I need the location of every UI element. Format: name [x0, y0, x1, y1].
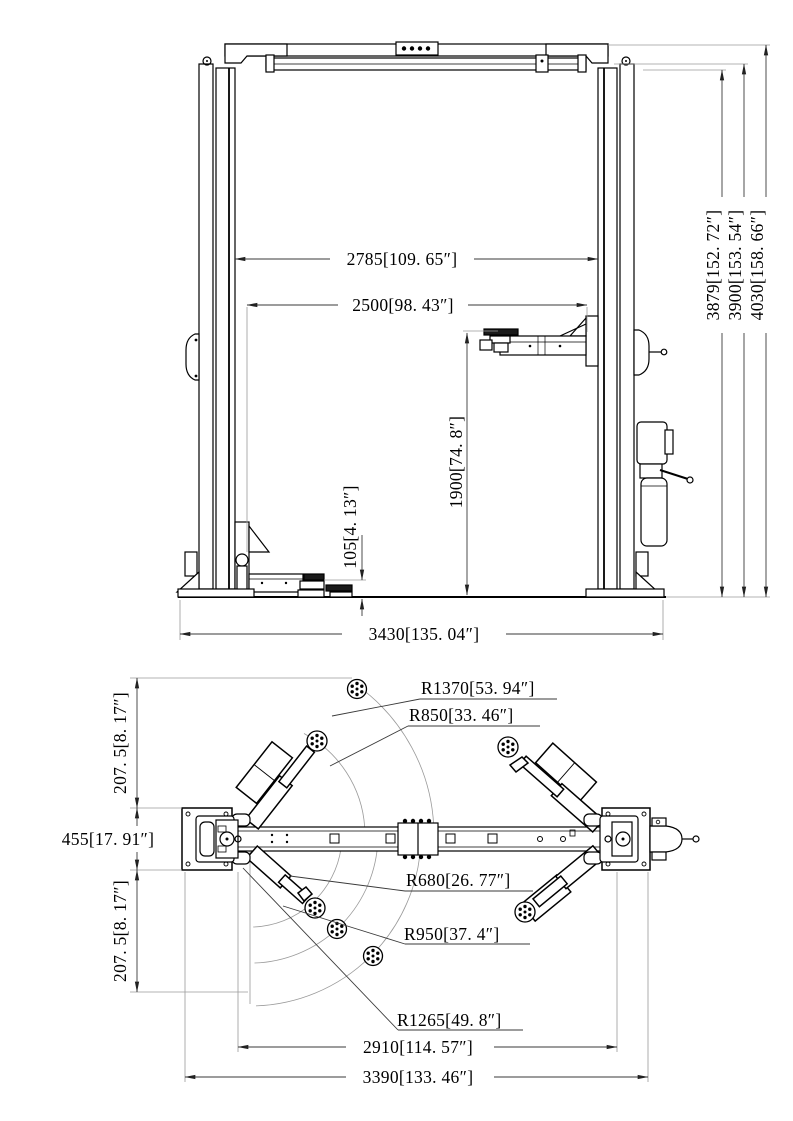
right-base-plate [586, 589, 664, 597]
label-radius-rear-mid: R950[37. 4″] [404, 924, 499, 944]
carriage-arm-lowered [235, 522, 352, 597]
handle-knob [693, 836, 699, 842]
dim-label-overall-height: 4030[158. 66″] [747, 210, 767, 321]
label-radius-max: R1370[53. 94″] [421, 678, 535, 698]
arm-lower-left [247, 846, 312, 904]
left-base-plate [178, 589, 254, 597]
floor-crossbeam [232, 819, 602, 859]
pad-wheel [498, 737, 518, 757]
left-column [177, 57, 235, 592]
dim-label-lift-height: 1900[74. 8″] [446, 416, 466, 509]
label-radius-rear-min: R680[26. 77″] [406, 870, 511, 890]
arm-pad-stack [298, 574, 352, 597]
dim-label-clearance-height: 3879[152. 72″] [703, 210, 723, 321]
plan-view-labels: R1370[53. 94″] R850[33. 46″] R680[26. 77… [62, 678, 535, 1087]
dim-lift-height [463, 331, 498, 595]
two-post-lift-drawing: 2785[109. 65″] 2500[98. 43″] 1900[74. 8″… [0, 0, 793, 1121]
label-radius-rear-max: R1265[49. 8″] [397, 1010, 502, 1030]
lift-arm [249, 574, 303, 592]
power-unit [637, 422, 693, 546]
lift-arm [500, 336, 586, 355]
technical-drawing-sheet: 2785[109. 65″] 2500[98. 43″] 1900[74. 8″… [0, 0, 793, 1121]
label-span-outer-plan: 3390[133. 46″] [363, 1067, 474, 1087]
pad-wheel [305, 898, 325, 918]
label-radius-front: R850[33. 46″] [409, 705, 514, 725]
plan-power-unit [650, 818, 699, 860]
dim-label-column-height: 3900[153. 54″] [725, 210, 745, 321]
label-offset-top: 207. 5[8. 17″] [110, 692, 130, 794]
carriage-arm-raised [480, 316, 598, 366]
dim-label-span-inner: 2785[109. 65″] [347, 249, 458, 269]
oil-tank [641, 478, 667, 546]
shield-pin [661, 349, 667, 355]
front-view-labels: 2785[109. 65″] 2500[98. 43″] 1900[74. 8″… [340, 210, 767, 644]
pad-wheel-swing-position [364, 947, 383, 966]
label-offset-bottom: 207. 5[8. 17″] [110, 880, 130, 982]
label-span-inner-plan: 2910[114. 57″] [363, 1037, 473, 1057]
right-shield-bracket [634, 330, 649, 375]
left-base-bracket [185, 552, 197, 576]
release-handle [660, 470, 688, 479]
pad-wheel [307, 731, 327, 751]
overhead-beam [225, 42, 608, 72]
motor [637, 422, 667, 464]
plan-right-base-plate [584, 808, 699, 870]
dim-label-span-carriage: 2500[98. 43″] [352, 295, 454, 315]
front-elevation-view [177, 42, 770, 597]
leader-r1265 [243, 868, 523, 1030]
dim-label-pad-min-height: 105[4. 13″] [340, 485, 360, 569]
pad-wheel-swing-position [348, 680, 367, 699]
arm-pivot-upper [584, 814, 602, 826]
dim-label-base-width: 3430[135. 04″] [369, 624, 480, 644]
right-base-bracket [636, 552, 648, 576]
label-base-depth: 455[17. 91″] [62, 829, 155, 849]
pad-wheel [515, 902, 535, 922]
arm-pivot-lower [584, 852, 602, 864]
